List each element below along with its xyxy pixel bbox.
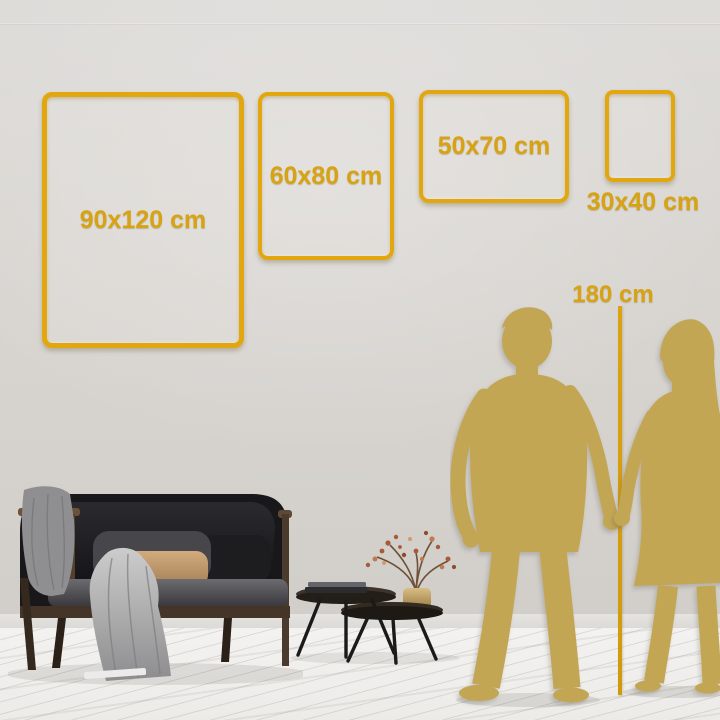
book-stack-top — [308, 582, 366, 587]
poster-size-guide-image: 90x120 cm 60x80 cm 50x70 cm 30x40 cm 180… — [0, 0, 720, 720]
wall-seam-line — [0, 23, 720, 25]
book-stack-bottom — [305, 587, 367, 593]
sofa — [8, 478, 303, 693]
frame-size-label-30x40: 30x40 cm — [578, 188, 708, 217]
sofa-front-left-leg — [52, 618, 66, 668]
frame-90x120: 90x120 cm — [42, 92, 244, 348]
frame-size-label-60x80: 60x80 cm — [270, 162, 383, 191]
frame-30x40 — [605, 90, 675, 182]
man-silhouette — [458, 307, 621, 702]
sofa-front-right-leg — [221, 618, 232, 662]
frame-60x80: 60x80 cm — [258, 92, 394, 260]
frame-50x70: 50x70 cm — [419, 90, 569, 203]
couple-silhouette — [450, 300, 720, 710]
frame-size-label-90x120: 90x120 cm — [80, 206, 207, 235]
frame-size-label-50x70: 50x70 cm — [438, 132, 551, 161]
sofa-seat-cushion — [48, 579, 288, 607]
woman-silhouette — [614, 319, 720, 693]
coffee-tables — [280, 515, 465, 665]
